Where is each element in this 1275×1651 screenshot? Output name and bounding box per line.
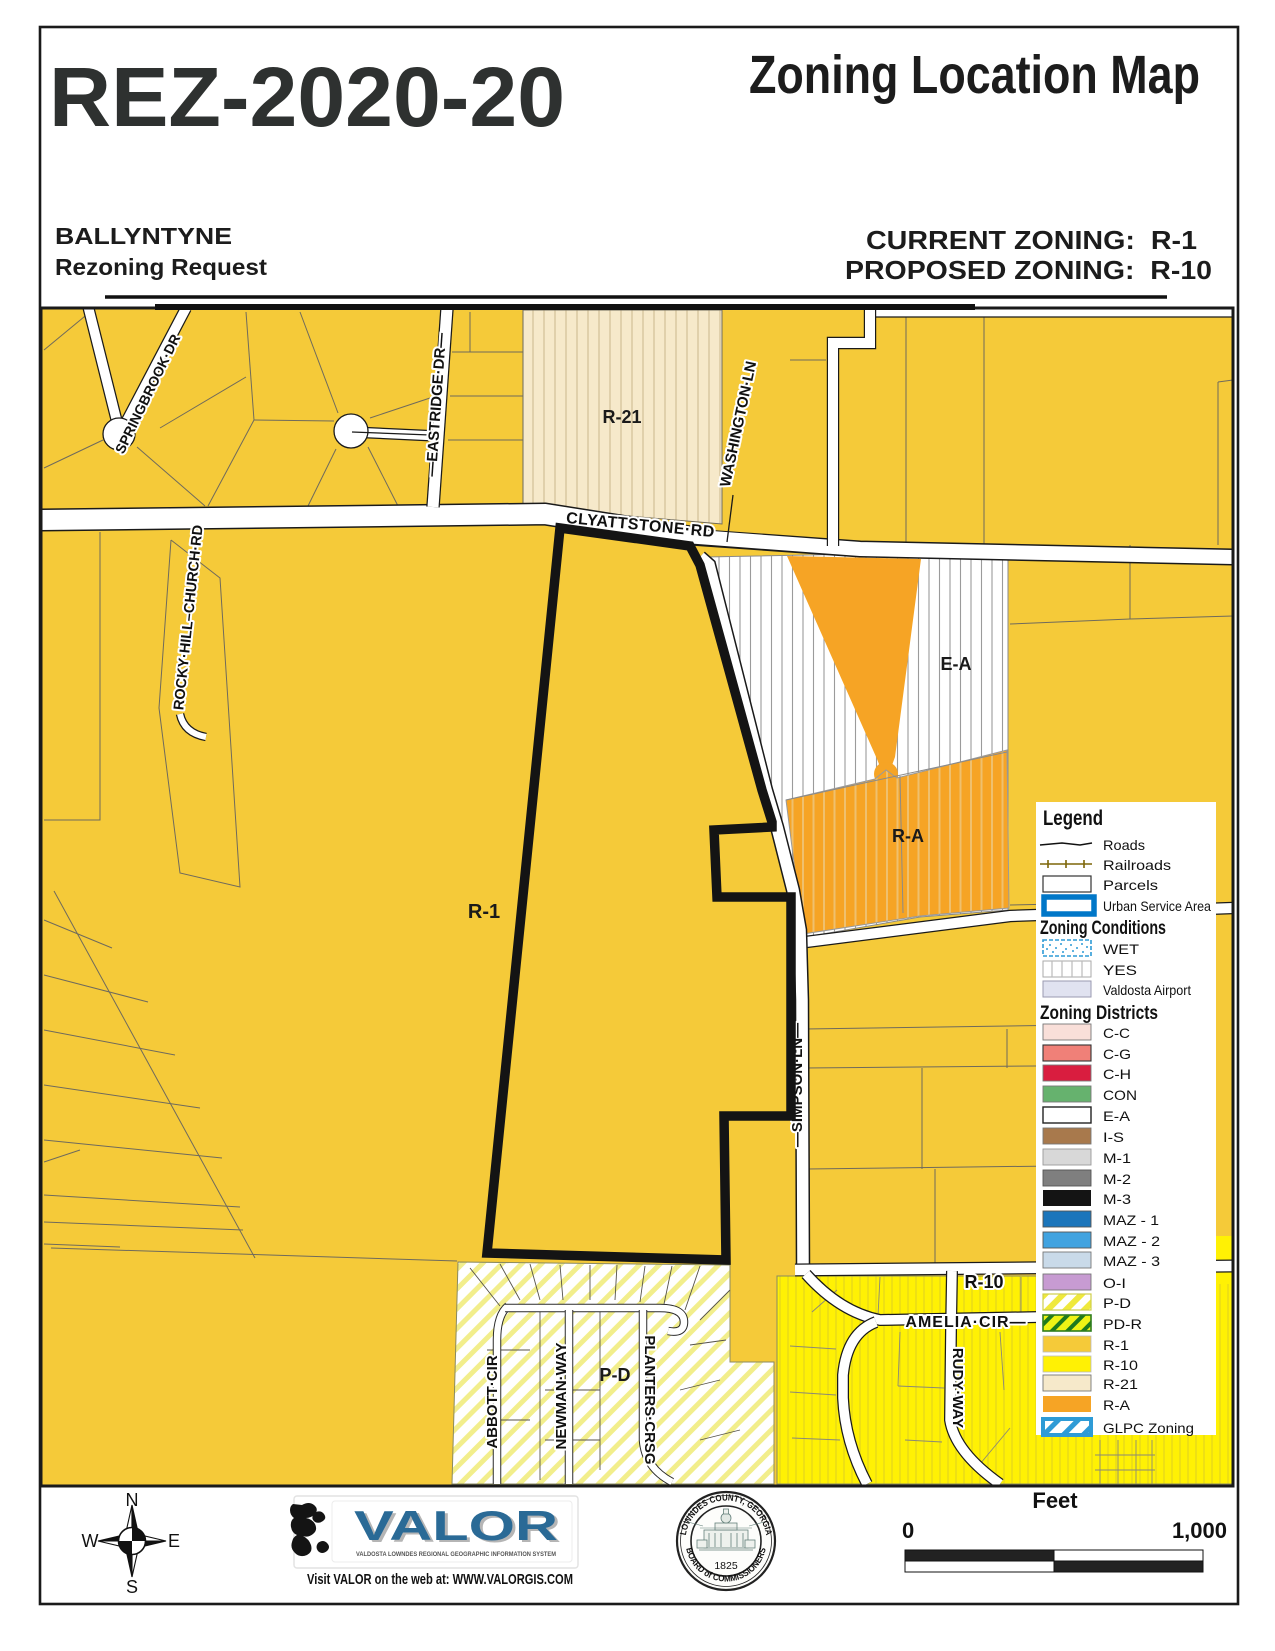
svg-text:VALOR: VALOR (354, 1502, 558, 1549)
svg-text:Parcels: Parcels (1103, 877, 1158, 893)
svg-text:Zoning Location Map: Zoning Location Map (749, 45, 1200, 105)
svg-text:BALLYNTYNE: BALLYNTYNE (55, 223, 232, 249)
svg-text:YES: YES (1103, 962, 1137, 978)
svg-text:R-21: R-21 (1103, 1376, 1138, 1392)
svg-text:M-1: M-1 (1103, 1150, 1131, 1166)
svg-text:P-D: P-D (600, 1365, 631, 1385)
svg-text:MAZ - 2: MAZ - 2 (1103, 1233, 1160, 1249)
svg-text:NEWMAN·WAY: NEWMAN·WAY (553, 1343, 570, 1450)
svg-text:1,000: 1,000 (1172, 1518, 1227, 1543)
svg-text:1825: 1825 (714, 1560, 738, 1572)
svg-text:GLPC Zoning: GLPC Zoning (1103, 1420, 1194, 1436)
svg-text:Urban Service Area: Urban Service Area (1103, 898, 1211, 914)
svg-text:Legend: Legend (1043, 807, 1103, 830)
svg-text:PD-R: PD-R (1103, 1316, 1142, 1332)
svg-text:R-A: R-A (1103, 1397, 1131, 1413)
svg-text:R-10: R-10 (1103, 1357, 1138, 1373)
svg-text:0: 0 (902, 1518, 914, 1543)
svg-text:R-1: R-1 (1103, 1337, 1129, 1353)
svg-text:Rezoning Request: Rezoning Request (55, 254, 267, 280)
svg-text:Valdosta Airport: Valdosta Airport (1103, 982, 1191, 998)
svg-text:S: S (126, 1577, 138, 1597)
svg-text:ABBOTT·CIR: ABBOTT·CIR (484, 1355, 501, 1448)
svg-text:PLANTERS·CRSG: PLANTERS·CRSG (641, 1335, 658, 1464)
svg-text:M-3: M-3 (1103, 1191, 1131, 1207)
svg-text:R-21: R-21 (602, 407, 641, 427)
svg-text:REZ-2020-20: REZ-2020-20 (49, 50, 565, 144)
svg-text:MAZ - 3: MAZ - 3 (1103, 1253, 1160, 1269)
svg-text:C-G: C-G (1103, 1046, 1131, 1062)
svg-text:R-1: R-1 (468, 901, 500, 923)
svg-text:MAZ - 1: MAZ - 1 (1103, 1212, 1159, 1228)
svg-text:Visit VALOR on the web at: WWW: Visit VALOR on the web at: WWW.VALORGIS.… (307, 1571, 573, 1588)
svg-text:CON: CON (1103, 1087, 1137, 1103)
svg-text:I-S: I-S (1103, 1129, 1124, 1145)
svg-text:Zoning Districts: Zoning Districts (1040, 1003, 1158, 1024)
svg-text:C-C: C-C (1103, 1025, 1130, 1041)
svg-text:Feet: Feet (1032, 1488, 1078, 1513)
svg-text:O-I: O-I (1103, 1275, 1126, 1291)
svg-text:P-D: P-D (1103, 1295, 1131, 1311)
svg-text:Zoning Conditions: Zoning Conditions (1040, 918, 1166, 939)
svg-text:E: E (168, 1531, 180, 1551)
svg-text:AMELIA·CIR—: AMELIA·CIR— (905, 1314, 1026, 1331)
svg-text:VALDOSTA LOWNDES REGIONAL GEOG: VALDOSTA LOWNDES REGIONAL GEOGRAPHIC INF… (356, 1551, 556, 1558)
svg-text:R-A: R-A (892, 826, 924, 846)
svg-text:E-A: E-A (1103, 1108, 1131, 1124)
svg-text:Roads: Roads (1103, 837, 1145, 853)
svg-text:C-H: C-H (1103, 1066, 1131, 1082)
svg-text:E-A: E-A (941, 654, 972, 674)
svg-text:R-10: R-10 (964, 1272, 1003, 1292)
svg-text:CURRENT ZONING: R-1: CURRENT ZONING: R-1 (866, 225, 1197, 255)
svg-text:PROPOSED ZONING: R-10: PROPOSED ZONING: R-10 (845, 255, 1212, 285)
svg-text:Railroads: Railroads (1103, 857, 1171, 873)
svg-text:W: W (82, 1531, 99, 1551)
svg-text:M-2: M-2 (1103, 1171, 1131, 1187)
svg-text:WET: WET (1103, 941, 1140, 957)
svg-text:RUDY·WAY: RUDY·WAY (949, 1348, 966, 1428)
svg-text:N: N (126, 1490, 139, 1510)
